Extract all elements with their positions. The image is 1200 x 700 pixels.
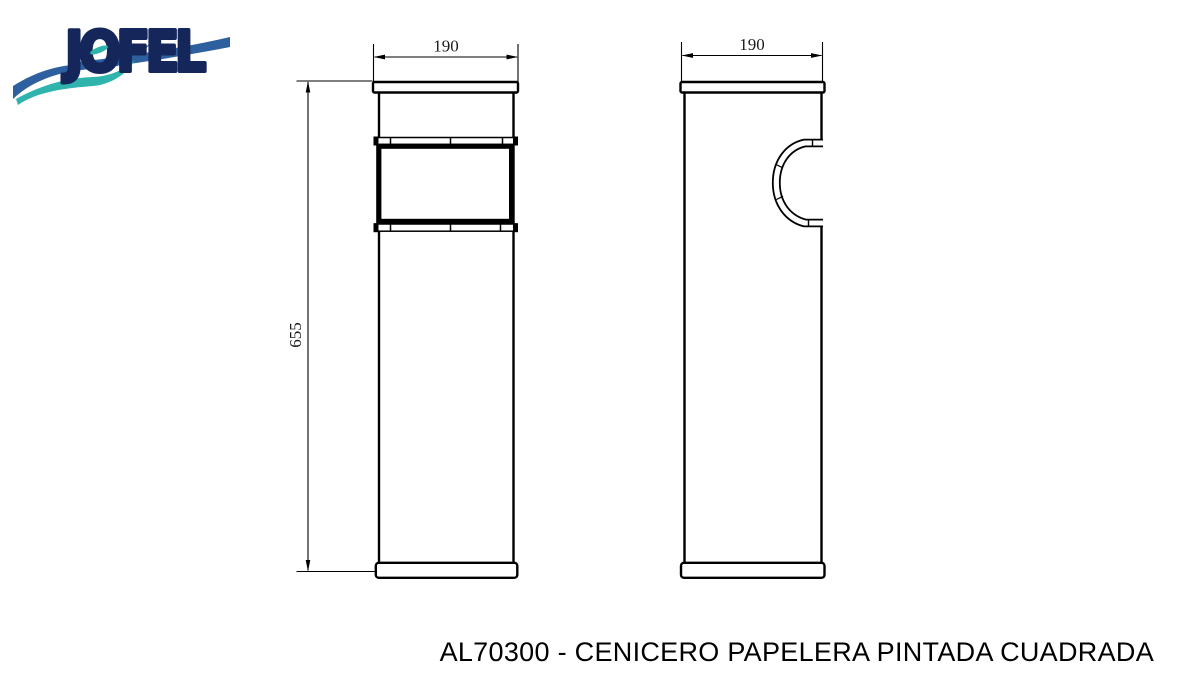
front-height-dimension [297,81,375,572]
side-base-cap [681,563,825,578]
front-opening-frame [379,146,512,221]
technical-drawing-page: JOFEL 190 655 [0,0,1200,700]
front-base-cap [376,563,518,578]
side-top-cap [681,82,825,93]
front-height-label: 655 [286,322,305,348]
side-body-sides [685,93,822,564]
front-view: 190 655 [286,37,518,578]
front-top-cap [373,82,518,93]
front-opening-bottom-band [374,223,519,232]
orthographic-views: 190 655 [0,0,1200,700]
side-hood-profile [773,140,823,227]
side-view: 190 [681,35,825,578]
drawing-caption: AL70300 - CENICERO PAPELERA PINTADA CUAD… [440,637,1154,668]
front-width-label: 190 [433,37,459,56]
side-width-label: 190 [739,35,765,54]
